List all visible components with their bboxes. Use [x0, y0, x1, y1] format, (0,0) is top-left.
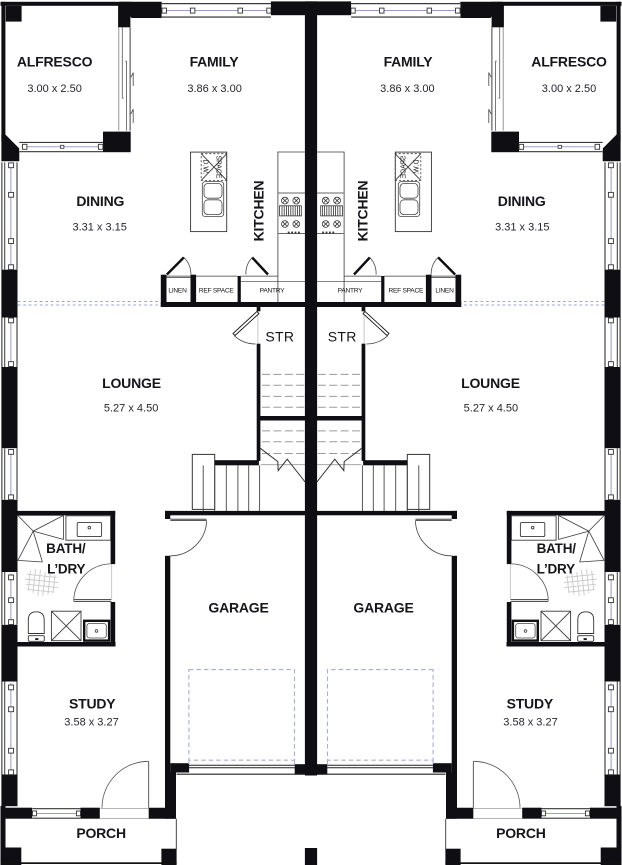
svg-text:DINING: DINING: [76, 193, 124, 209]
svg-text:3.58 x 3.27: 3.58 x 3.27: [503, 716, 557, 728]
svg-text:BATH/: BATH/: [46, 541, 86, 556]
svg-text:BATH/: BATH/: [537, 541, 577, 556]
svg-text:FAMILY: FAMILY: [384, 53, 434, 69]
svg-text:GARAGE: GARAGE: [208, 600, 268, 616]
svg-text:L’DRY: L’DRY: [47, 561, 85, 576]
svg-text:PANTRY: PANTRY: [338, 287, 363, 294]
svg-text:3.86 x 3.00: 3.86 x 3.00: [187, 83, 241, 95]
svg-text:3.31 x 3.15: 3.31 x 3.15: [72, 221, 126, 233]
svg-text:L’DRY: L’DRY: [537, 561, 575, 576]
svg-text:PANTRY: PANTRY: [260, 287, 285, 294]
svg-text:REF SPACE: REF SPACE: [388, 287, 423, 294]
svg-text:SPACE: SPACE: [215, 155, 222, 179]
svg-text:GARAGE: GARAGE: [353, 600, 413, 616]
svg-text:FAMILY: FAMILY: [190, 53, 240, 69]
svg-text:KITCHEN: KITCHEN: [354, 181, 370, 242]
svg-text:KITCHEN: KITCHEN: [251, 181, 267, 242]
svg-text:ALFRESCO: ALFRESCO: [17, 53, 93, 69]
svg-text:3.00 x 2.50: 3.00 x 2.50: [542, 83, 596, 95]
svg-text:STR: STR: [328, 329, 357, 345]
svg-text:LOUNGE: LOUNGE: [461, 375, 520, 391]
svg-text:DINING: DINING: [498, 193, 546, 209]
svg-text:3.31 x 3.15: 3.31 x 3.15: [495, 221, 549, 233]
svg-text:STUDY: STUDY: [507, 696, 554, 712]
svg-text:5.27 x 4.50: 5.27 x 4.50: [464, 403, 518, 415]
svg-text:D.W.: D.W.: [202, 159, 209, 174]
svg-text:LINEN: LINEN: [168, 287, 187, 294]
svg-text:ALFRESCO: ALFRESCO: [531, 53, 607, 69]
svg-text:LOUNGE: LOUNGE: [102, 375, 161, 391]
svg-text:3.86 x 3.00: 3.86 x 3.00: [380, 83, 434, 95]
svg-text:PORCH: PORCH: [76, 825, 126, 841]
svg-text:LINEN: LINEN: [435, 287, 454, 294]
svg-text:REF SPACE: REF SPACE: [199, 287, 234, 294]
svg-text:5.27 x 4.50: 5.27 x 4.50: [104, 403, 158, 415]
svg-text:3.58 x 3.27: 3.58 x 3.27: [64, 716, 118, 728]
svg-text:3.00 x 2.50: 3.00 x 2.50: [27, 83, 81, 95]
svg-text:STUDY: STUDY: [69, 696, 116, 712]
svg-text:PORCH: PORCH: [496, 825, 546, 841]
svg-text:STR: STR: [265, 329, 294, 345]
